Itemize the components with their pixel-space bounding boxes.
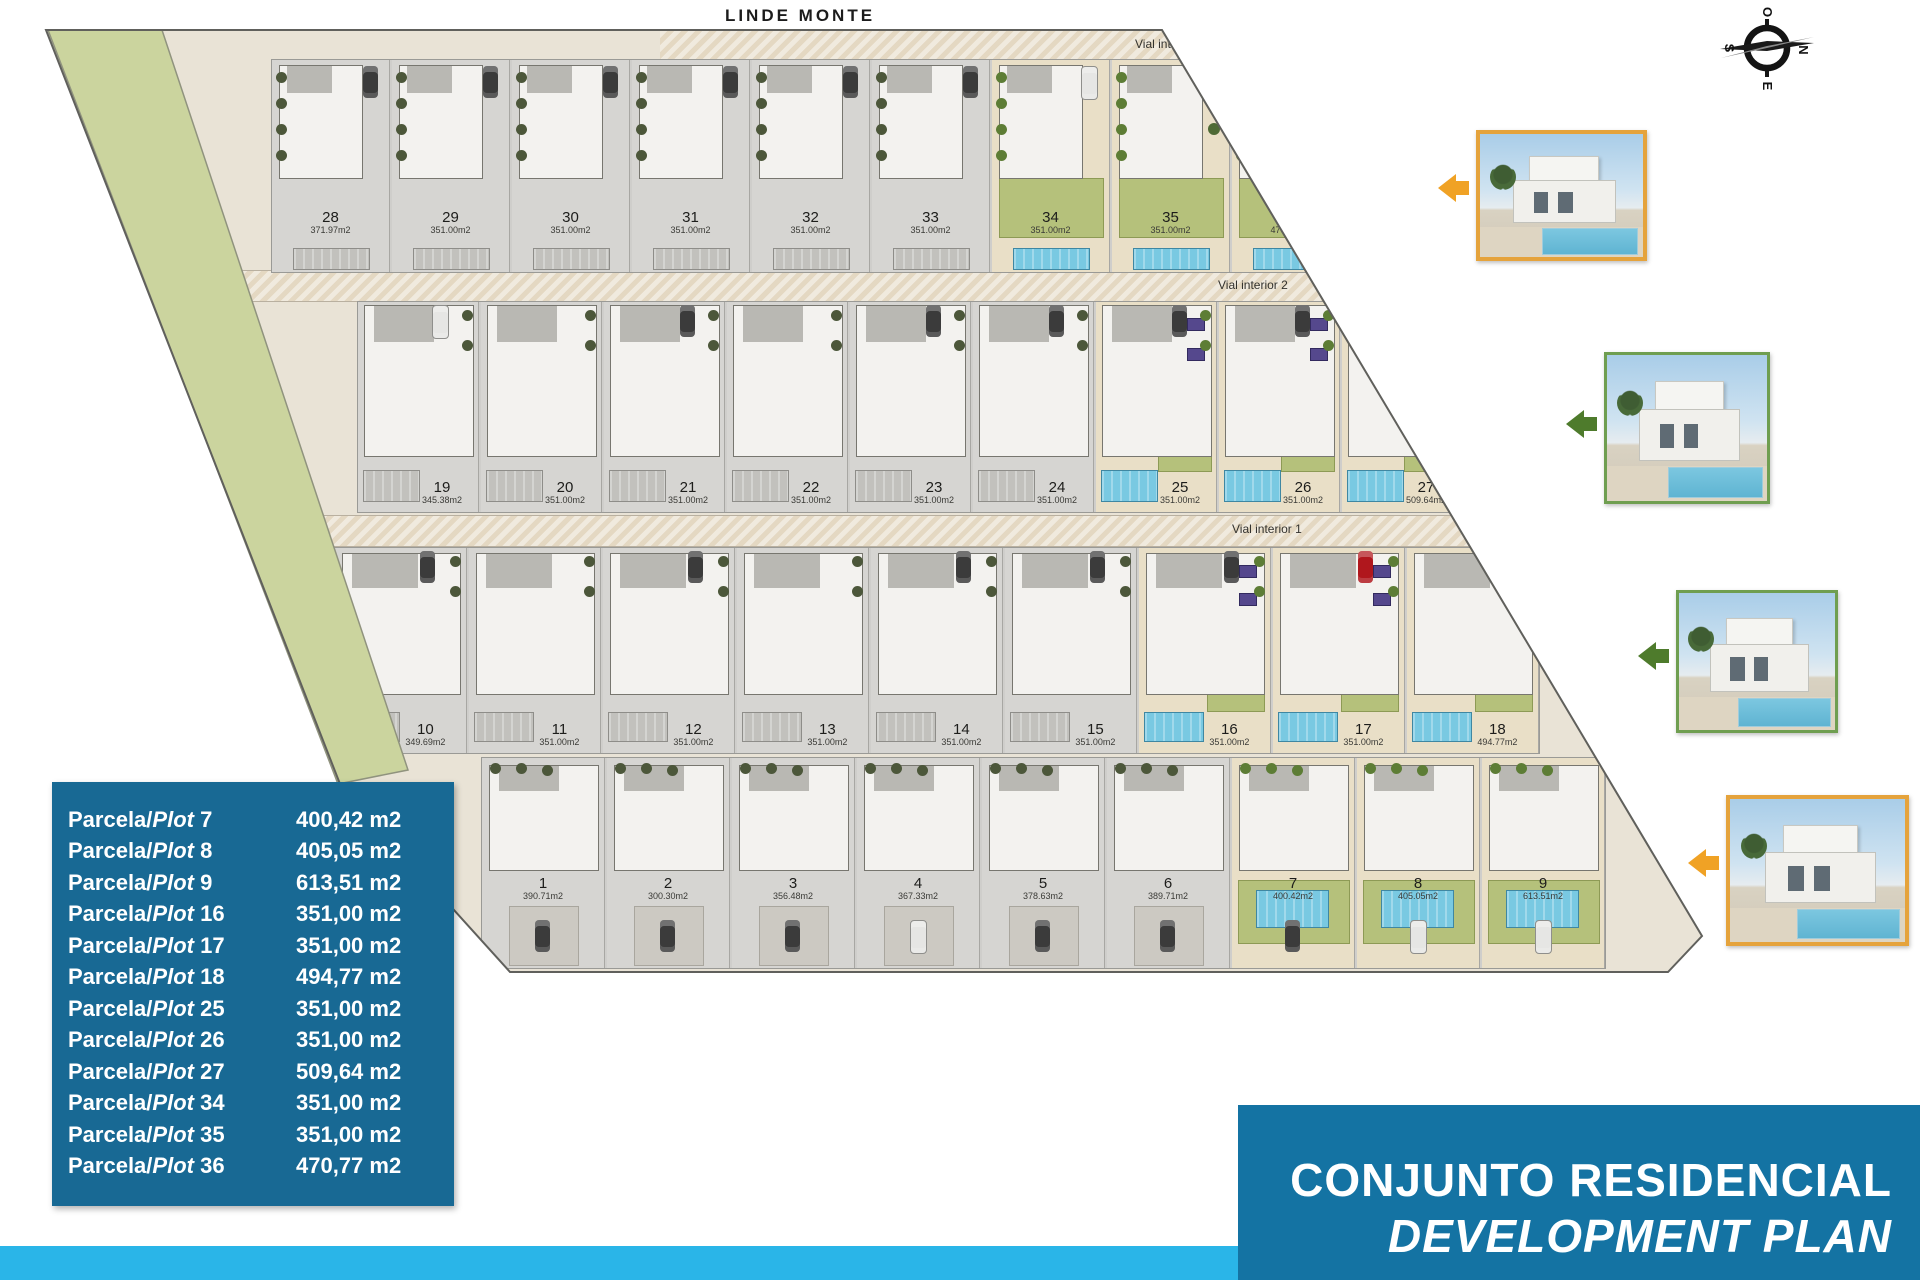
- tree-icons: [1522, 556, 1533, 567]
- roof-terrace: [647, 66, 693, 93]
- plot-label: 35 351.00m2: [1112, 210, 1229, 235]
- house-footprint: [614, 765, 723, 871]
- tree-icons: [990, 763, 1001, 774]
- plot-number: 12: [655, 722, 731, 738]
- legend-row: Parcela/Plot 25 351,00 m2: [68, 993, 440, 1025]
- swimming-pool: [893, 248, 970, 270]
- legend-label-en: Plot: [152, 933, 194, 958]
- house-footprint: [759, 65, 843, 179]
- tree-icons: [1254, 556, 1265, 567]
- roof-terrace: [497, 306, 557, 342]
- solar-panel-icon: [1507, 565, 1525, 578]
- plot-number: 34: [992, 210, 1109, 226]
- plot-32: 32 351.00m2: [752, 60, 870, 272]
- house-footprint: [856, 305, 966, 457]
- legend-label-en: Plot: [152, 901, 194, 926]
- plot-number: 1: [482, 876, 604, 892]
- legend-area-value: 494,77 m2: [296, 964, 401, 990]
- house-footprint: [1239, 65, 1323, 179]
- plot-area-label: 613.51m2: [1482, 892, 1604, 901]
- pool-in-photo: [1738, 698, 1830, 727]
- plot-label: 4 367.33m2: [857, 876, 979, 901]
- house-footprint: [279, 65, 363, 179]
- house-footprint: [733, 305, 843, 457]
- tree-icons: [584, 556, 595, 567]
- plot-12: 12 351.00m2: [603, 548, 735, 753]
- plot-33: 33 351.00m2: [872, 60, 990, 272]
- tree-icons: [954, 310, 965, 321]
- plot-number: 20: [531, 480, 598, 496]
- roof-terrace: [1499, 766, 1559, 791]
- car-icon: [688, 551, 703, 583]
- plot-number: 9: [1482, 876, 1604, 892]
- banner-title-es: CONJUNTO RESIDENCIAL: [1290, 1153, 1892, 1207]
- legend-label-es: Parcela/: [68, 1059, 152, 1084]
- tree-icons: [516, 72, 527, 83]
- plot-area-label: 351.00m2: [1112, 226, 1229, 235]
- car-icon: [956, 551, 971, 583]
- plot-label: 5 378.63m2: [982, 876, 1104, 901]
- legend-label: Parcela/Plot 25: [68, 996, 296, 1022]
- roof-terrace: [1127, 66, 1173, 93]
- roof-terrace: [1247, 66, 1293, 93]
- plot-label: 13 351.00m2: [789, 722, 865, 747]
- house-footprint: [1348, 305, 1458, 457]
- roof-terrace: [287, 66, 333, 93]
- tree-icons: [718, 556, 729, 567]
- plot-number: 21: [654, 480, 721, 496]
- tree-icons: [756, 72, 767, 83]
- plot-number: 4: [857, 876, 979, 892]
- roof-terrace: [486, 554, 552, 588]
- solar-panel-icon: [1433, 318, 1451, 331]
- plot-area-label: 351.00m2: [392, 226, 509, 235]
- plot-10: 10 349.69m2: [335, 548, 467, 753]
- house-footprint: [489, 765, 598, 871]
- plot-area-label: 351.00m2: [789, 738, 865, 747]
- legend-area-value: 351,00 m2: [296, 1027, 401, 1053]
- solar-panel-icon: [1433, 348, 1451, 361]
- roof-terrace: [1358, 306, 1418, 342]
- legend-label-en: Plot: [152, 1153, 194, 1178]
- plot-number: 7: [1232, 876, 1354, 892]
- plot-30: 30 351.00m2: [512, 60, 630, 272]
- plot-label: 16 351.00m2: [1191, 722, 1267, 747]
- tree-icons: [831, 310, 842, 321]
- plot-number: 28: [272, 210, 389, 226]
- plot-label: 36 470.77m2: [1232, 210, 1349, 235]
- tree-icons: [1120, 556, 1131, 567]
- roof-terrace: [888, 554, 954, 588]
- plot-area-label: 351.00m2: [654, 496, 721, 505]
- arrow-left-icon: [1638, 642, 1670, 670]
- house-footprint: [1102, 305, 1212, 457]
- plot-number: 24: [1023, 480, 1090, 496]
- plot-number: 3: [732, 876, 854, 892]
- plot-label: 19 345.38m2: [408, 480, 475, 505]
- roof-terrace: [999, 766, 1059, 791]
- villa-photo: [1726, 795, 1909, 946]
- roof-terrace: [374, 306, 434, 342]
- house-footprint: [979, 305, 1089, 457]
- tree-icons: [1236, 72, 1247, 83]
- legend-plot-num: 27: [194, 1059, 225, 1084]
- plot-27: 27 509.64m2: [1342, 302, 1463, 512]
- plot-label: 28 371.97m2: [272, 210, 389, 235]
- tree-icons: [615, 763, 626, 774]
- street-label-vial-2: Vial interior 2: [1218, 278, 1288, 292]
- tree-icons: [585, 310, 596, 321]
- arrow-left-icon: [1566, 410, 1598, 438]
- roof-terrace: [620, 306, 680, 342]
- tree-icons: [986, 556, 997, 567]
- house-footprint: [1012, 553, 1132, 695]
- house-footprint: [744, 553, 864, 695]
- villa-photo: [1604, 352, 1770, 504]
- plot-area-label: 351.00m2: [632, 226, 749, 235]
- legend-label-en: Plot: [152, 996, 194, 1021]
- plot-number: 30: [512, 210, 629, 226]
- plot-label: 14 351.00m2: [923, 722, 999, 747]
- legend-plot-num: 25: [194, 996, 225, 1021]
- tree-icons: [708, 310, 719, 321]
- swimming-pool: [773, 248, 850, 270]
- plot-number: 15: [1057, 722, 1133, 738]
- car-icon: [1201, 66, 1218, 100]
- legend-row: Parcela/Plot 27 509,64 m2: [68, 1056, 440, 1088]
- compass-south: S: [1722, 44, 1737, 53]
- plot-label: 21 351.00m2: [654, 480, 721, 505]
- plot-label: 1 390.71m2: [482, 876, 604, 901]
- legend-row: Parcela/Plot 26 351,00 m2: [68, 1025, 440, 1057]
- plot-25: 25 351.00m2: [1096, 302, 1217, 512]
- house-footprint: [610, 305, 720, 457]
- plot-area-label: 378.63m2: [982, 892, 1104, 901]
- plot-area-label: 351.00m2: [1191, 738, 1267, 747]
- legend-label-es: Parcela/: [68, 933, 152, 958]
- plot-number: 8: [1357, 876, 1479, 892]
- plot-area-label: 349.69m2: [387, 738, 463, 747]
- solar-panel-icon: [1373, 593, 1391, 606]
- plot-number: 27: [1392, 480, 1459, 496]
- development-plan-poster: LINDE MONTE O N E S Vial interior 3 Vial…: [0, 0, 1920, 1280]
- roof-terrace: [352, 554, 418, 588]
- plot-label: 29 351.00m2: [392, 210, 509, 235]
- plot-number: 5: [982, 876, 1104, 892]
- house-footprint: [476, 553, 596, 695]
- plot-17: 17 351.00m2: [1273, 548, 1405, 753]
- solar-panel-icon: [1239, 593, 1257, 606]
- plot-area-label: 351.00m2: [900, 496, 967, 505]
- plot-row-10-18: 10 349.69m2 11 351.00m2 12 351.00m2: [335, 548, 1539, 753]
- car-icon: [1090, 551, 1105, 583]
- legend-label-es: Parcela/: [68, 1122, 152, 1147]
- tree-icons: [1446, 310, 1457, 321]
- plot-28: 28 371.97m2: [272, 60, 390, 272]
- plot-area-label: 300.30m2: [607, 892, 729, 901]
- swimming-pool: [1133, 248, 1210, 270]
- house-footprint: [1146, 553, 1266, 695]
- plot-area-label: 351.00m2: [512, 226, 629, 235]
- plot-label: 9 613.51m2: [1482, 876, 1604, 901]
- legend-label-en: Plot: [152, 807, 194, 832]
- roof-terrace: [866, 306, 926, 342]
- plot-area-label: 494.77m2: [1459, 738, 1535, 747]
- roof-terrace: [1156, 554, 1222, 588]
- solar-panel-icon: [1373, 565, 1391, 578]
- car-icon: [483, 66, 498, 98]
- plot-area-label: 390.71m2: [482, 892, 604, 901]
- car-icon: [1285, 920, 1300, 952]
- plot-number: 14: [923, 722, 999, 738]
- legend-row: Parcela/Plot 35 351,00 m2: [68, 1119, 440, 1151]
- car-icon: [910, 920, 927, 954]
- house-footprint: [364, 305, 474, 457]
- plot-area-label: 400.42m2: [1232, 892, 1354, 901]
- plot-15: 15 351.00m2: [1005, 548, 1137, 753]
- car-icon: [1049, 305, 1064, 337]
- legend-label-en: Plot: [152, 964, 194, 989]
- plot-number: 31: [632, 210, 749, 226]
- street-vial-interior-1: [320, 515, 1530, 547]
- legend-row: Parcela/Plot 36 470,77 m2: [68, 1151, 440, 1183]
- plot-16: 16 351.00m2: [1139, 548, 1271, 753]
- legend-row: Parcela/Plot 7 400,42 m2: [68, 804, 440, 836]
- compass-icon: O N E S: [1712, 2, 1822, 94]
- car-icon: [1358, 551, 1373, 583]
- roof-terrace: [1112, 306, 1172, 342]
- legend-label: Parcela/Plot 16: [68, 901, 296, 927]
- swimming-pool: [1253, 248, 1330, 270]
- legend-label-es: Parcela/: [68, 964, 152, 989]
- car-icon: [1172, 305, 1187, 337]
- plot-area-label: 367.33m2: [857, 892, 979, 901]
- plot-36: 36 470.77m2: [1232, 60, 1350, 272]
- legend-row: Parcela/Plot 34 351,00 m2: [68, 1088, 440, 1120]
- house-footprint: [1114, 765, 1223, 871]
- house-footprint: [1489, 765, 1598, 871]
- car-icon: [843, 66, 858, 98]
- legend-label: Parcela/Plot 35: [68, 1122, 296, 1148]
- plot-area-legend: Parcela/Plot 7 400,42 m2 Parcela/Plot 8 …: [52, 782, 454, 1206]
- roof-terrace: [1249, 766, 1309, 791]
- house-footprint: [399, 65, 483, 179]
- plot-label: 22 351.00m2: [777, 480, 844, 505]
- plot-number: 13: [789, 722, 865, 738]
- pool-in-photo: [1542, 228, 1639, 255]
- plot-area-label: 351.00m2: [1146, 496, 1213, 505]
- plot-8: 8 405.05m2: [1357, 758, 1480, 968]
- legend-label-es: Parcela/: [68, 1027, 152, 1052]
- title-banner: CONJUNTO RESIDENCIAL DEVELOPMENT PLAN: [1238, 1105, 1920, 1280]
- legend-area-value: 470,77 m2: [296, 1153, 401, 1179]
- plot-area-label: 351.00m2: [1057, 738, 1133, 747]
- plot-label: 15 351.00m2: [1057, 722, 1133, 747]
- solar-panel-icon: [1310, 348, 1328, 361]
- tree-icons: [396, 72, 407, 83]
- tree-icons: [1490, 763, 1501, 774]
- car-icon: [603, 66, 618, 98]
- roof-terrace: [989, 306, 1049, 342]
- legend-label: Parcela/Plot 18: [68, 964, 296, 990]
- legend-row: Parcela/Plot 17 351,00 m2: [68, 930, 440, 962]
- solar-panel-icon: [1507, 593, 1525, 606]
- page-title: LINDE MONTE: [640, 6, 960, 26]
- roof-terrace: [743, 306, 803, 342]
- legend-label-es: Parcela/: [68, 1153, 152, 1178]
- house-footprint: [864, 765, 973, 871]
- tree-icons: [462, 310, 473, 321]
- plot-number: 33: [872, 210, 989, 226]
- plot-number: 29: [392, 210, 509, 226]
- plot-label: 34 351.00m2: [992, 210, 1109, 235]
- plot-area-label: 351.00m2: [872, 226, 989, 235]
- roof-terrace: [1022, 554, 1088, 588]
- plot-4: 4 367.33m2: [857, 758, 980, 968]
- plot-7: 7 400.42m2: [1232, 758, 1355, 968]
- plot-number: 17: [1325, 722, 1401, 738]
- tree-icons: [1388, 556, 1399, 567]
- car-icon: [660, 920, 675, 952]
- pool-in-photo: [1797, 909, 1901, 940]
- plot-number: 10: [387, 722, 463, 738]
- banner-title-en: DEVELOPMENT PLAN: [1388, 1209, 1892, 1263]
- house-footprint: [1364, 765, 1473, 871]
- plot-area-label: 356.48m2: [732, 892, 854, 901]
- street-label-vial-3: Vial interior 3: [1135, 37, 1205, 51]
- house-footprint: [487, 305, 597, 457]
- house-footprint: [1280, 553, 1400, 695]
- plot-number: 19: [408, 480, 475, 496]
- roof-terrace: [874, 766, 934, 791]
- plot-number: 18: [1459, 722, 1535, 738]
- car-icon: [1035, 920, 1050, 952]
- plot-area-label: 509.64m2: [1392, 496, 1459, 505]
- legend-area-value: 351,00 m2: [296, 996, 401, 1022]
- street-vial-interior-3: [660, 30, 1480, 60]
- car-icon: [420, 551, 435, 583]
- plot-5: 5 378.63m2: [982, 758, 1105, 968]
- plot-number: 16: [1191, 722, 1267, 738]
- villa-photo: [1676, 590, 1838, 733]
- roof-terrace: [1235, 306, 1295, 342]
- legend-plot-num: 18: [194, 964, 225, 989]
- plot-number: 2: [607, 876, 729, 892]
- plot-29: 29 351.00m2: [392, 60, 510, 272]
- legend-plot-num: 9: [194, 870, 212, 895]
- tree-icons: [1365, 763, 1376, 774]
- legend-plot-num: 34: [194, 1090, 225, 1115]
- plot-14: 14 351.00m2: [871, 548, 1003, 753]
- swimming-pool: [533, 248, 610, 270]
- car-icon: [723, 66, 738, 98]
- house-footprint: [610, 553, 730, 695]
- plot-35: 35 351.00m2: [1112, 60, 1230, 272]
- legend-label: Parcela/Plot 26: [68, 1027, 296, 1053]
- legend-area-value: 351,00 m2: [296, 901, 401, 927]
- roof-terrace: [887, 66, 933, 93]
- legend-area-value: 509,64 m2: [296, 1059, 401, 1085]
- legend-label: Parcela/Plot 7: [68, 807, 296, 833]
- car-icon: [1081, 66, 1098, 100]
- tree-icons: [740, 763, 751, 774]
- legend-plot-num: 17: [194, 933, 225, 958]
- tree-icons: [1116, 72, 1127, 83]
- roof-terrace: [1374, 766, 1434, 791]
- tree-icons: [865, 763, 876, 774]
- plot-area-label: 351.00m2: [521, 738, 597, 747]
- tree-icons: [852, 556, 863, 567]
- roof-terrace: [624, 766, 684, 791]
- roof-terrace: [527, 66, 573, 93]
- plot-label: 31 351.00m2: [632, 210, 749, 235]
- legend-label: Parcela/Plot 9: [68, 870, 296, 896]
- plot-area-label: 351.00m2: [531, 496, 598, 505]
- tree-icons: [1115, 763, 1126, 774]
- plot-label: 12 351.00m2: [655, 722, 731, 747]
- house-footprint: [1225, 305, 1335, 457]
- villa-photo: [1476, 130, 1647, 261]
- street-label-vial-1: Vial interior 1: [1232, 522, 1302, 536]
- plot-area-label: 351.00m2: [752, 226, 869, 235]
- plot-area-label: 351.00m2: [1325, 738, 1401, 747]
- plot-label: 18 494.77m2: [1459, 722, 1535, 747]
- tree-icons: [996, 72, 1007, 83]
- house-footprint: [342, 553, 462, 695]
- plot-area-label: 345.38m2: [408, 496, 475, 505]
- plot-label: 33 351.00m2: [872, 210, 989, 235]
- roof-terrace: [407, 66, 453, 93]
- house-footprint: [879, 65, 963, 179]
- plot-22: 22 351.00m2: [727, 302, 848, 512]
- compass-east: E: [1760, 82, 1775, 91]
- car-icon: [363, 66, 378, 98]
- car-icon: [535, 920, 550, 952]
- plot-area-label: 351.00m2: [777, 496, 844, 505]
- plot-label: 10 349.69m2: [387, 722, 463, 747]
- compass-west: O: [1760, 7, 1775, 17]
- plot-area-label: 351.00m2: [655, 738, 731, 747]
- plot-23: 23 351.00m2: [850, 302, 971, 512]
- plot-26: 26 351.00m2: [1219, 302, 1340, 512]
- plot-label: 7 400.42m2: [1232, 876, 1354, 901]
- legend-label-es: Parcela/: [68, 870, 152, 895]
- plot-row-19-27: 19 345.38m2 20 351.00m2 21 351.00m2: [358, 302, 1463, 512]
- plot-11: 11 351.00m2: [469, 548, 601, 753]
- roof-terrace: [620, 554, 686, 588]
- roof-terrace: [1124, 766, 1184, 791]
- plot-20: 20 351.00m2: [481, 302, 602, 512]
- plot-label: 23 351.00m2: [900, 480, 967, 505]
- plot-area-label: 351.00m2: [1023, 496, 1090, 505]
- plot-2: 2 300.30m2: [607, 758, 730, 968]
- plot-area-label: 389.71m2: [1107, 892, 1229, 901]
- legend-label-en: Plot: [152, 1059, 194, 1084]
- legend-plot-num: 16: [194, 901, 225, 926]
- cyan-footer-strip: [0, 1246, 1238, 1280]
- plot-number: 23: [900, 480, 967, 496]
- legend-plot-num: 8: [194, 838, 212, 863]
- car-icon: [432, 305, 449, 339]
- swimming-pool: [413, 248, 490, 270]
- house-footprint: [999, 65, 1083, 179]
- plot-label: 25 351.00m2: [1146, 480, 1213, 505]
- house-footprint: [639, 65, 723, 179]
- house-footprint: [878, 553, 998, 695]
- plot-number: 26: [1269, 480, 1336, 496]
- plot-label: 27 509.64m2: [1392, 480, 1459, 505]
- plot-number: 35: [1112, 210, 1229, 226]
